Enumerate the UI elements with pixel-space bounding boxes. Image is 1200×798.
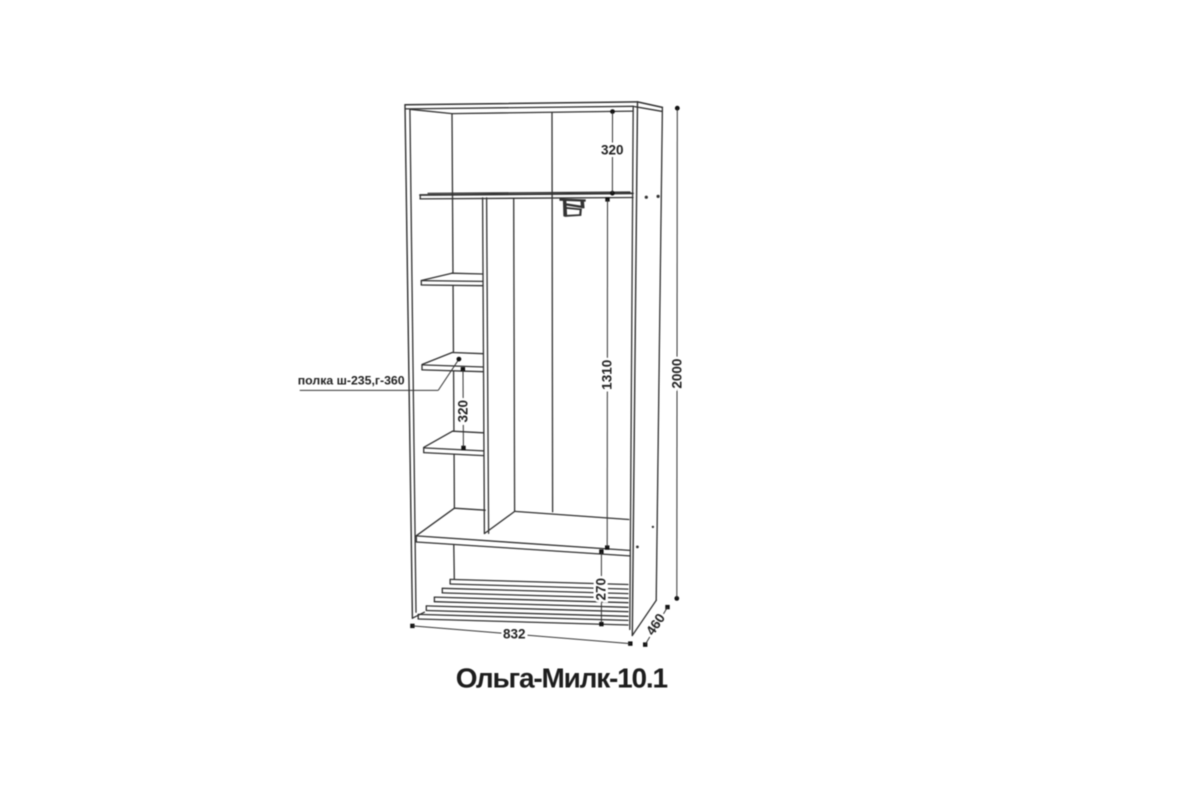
svg-text:320: 320 bbox=[455, 400, 470, 423]
svg-text:Ольга-Милк-10.1: Ольга-Милк-10.1 bbox=[456, 662, 668, 693]
svg-text:полка ш-235,г-360: полка ш-235,г-360 bbox=[298, 373, 405, 387]
svg-text:1310: 1310 bbox=[600, 360, 615, 390]
svg-text:320: 320 bbox=[601, 143, 624, 158]
svg-text:2000: 2000 bbox=[670, 359, 685, 389]
svg-text:270: 270 bbox=[593, 578, 608, 601]
svg-text:832: 832 bbox=[503, 627, 526, 642]
